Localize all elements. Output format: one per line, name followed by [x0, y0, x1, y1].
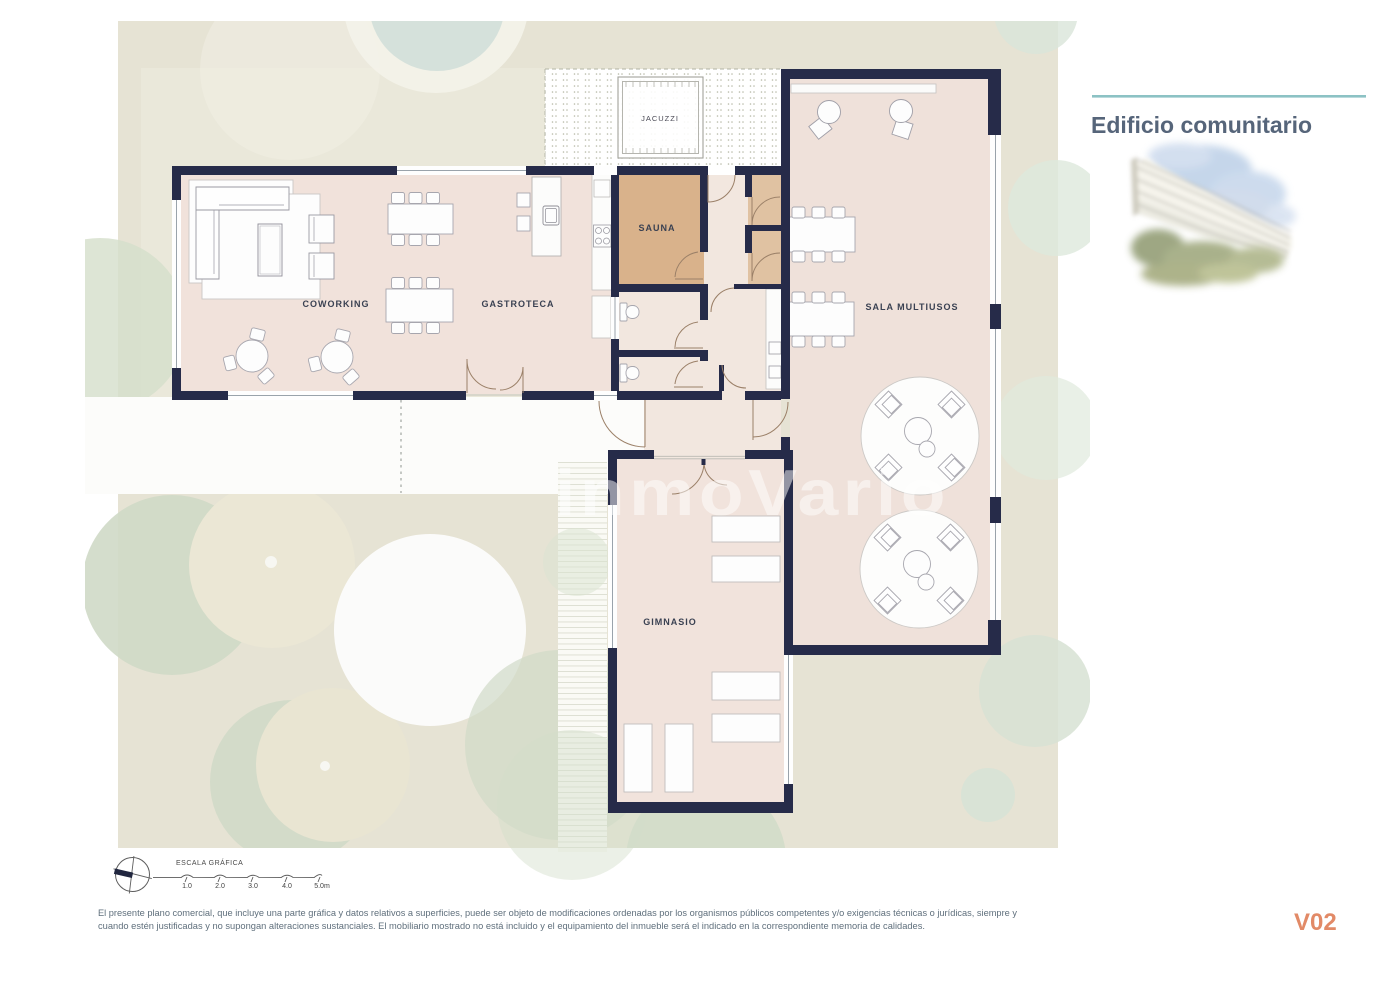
svg-text:GIMNASIO: GIMNASIO [643, 617, 697, 627]
svg-text:El presente plano comercial, q: El presente plano comercial, que incluye… [98, 908, 1017, 919]
svg-text:4.0: 4.0 [282, 883, 292, 890]
svg-text:COWORKING: COWORKING [303, 299, 370, 309]
svg-text:1.0: 1.0 [182, 883, 192, 890]
svg-text:2.0: 2.0 [215, 883, 225, 890]
svg-text:5.0m: 5.0m [314, 883, 330, 890]
svg-text:JACUZZI: JACUZZI [641, 114, 679, 123]
svg-text:ESCALA GRÁFICA: ESCALA GRÁFICA [176, 858, 243, 867]
svg-text:inmoVario: inmoVario [555, 456, 950, 529]
svg-text:V02: V02 [1294, 909, 1337, 936]
svg-text:cuando estén justificadas y no: cuando estén justificadas y no supongan … [98, 921, 925, 932]
svg-text:SALA MULTIUSOS: SALA MULTIUSOS [866, 302, 959, 312]
svg-text:Edificio comunitario: Edificio comunitario [1091, 112, 1312, 138]
svg-text:SAUNA: SAUNA [638, 223, 675, 233]
svg-text:3.0: 3.0 [248, 883, 258, 890]
svg-text:GASTROTECA: GASTROTECA [482, 299, 555, 309]
